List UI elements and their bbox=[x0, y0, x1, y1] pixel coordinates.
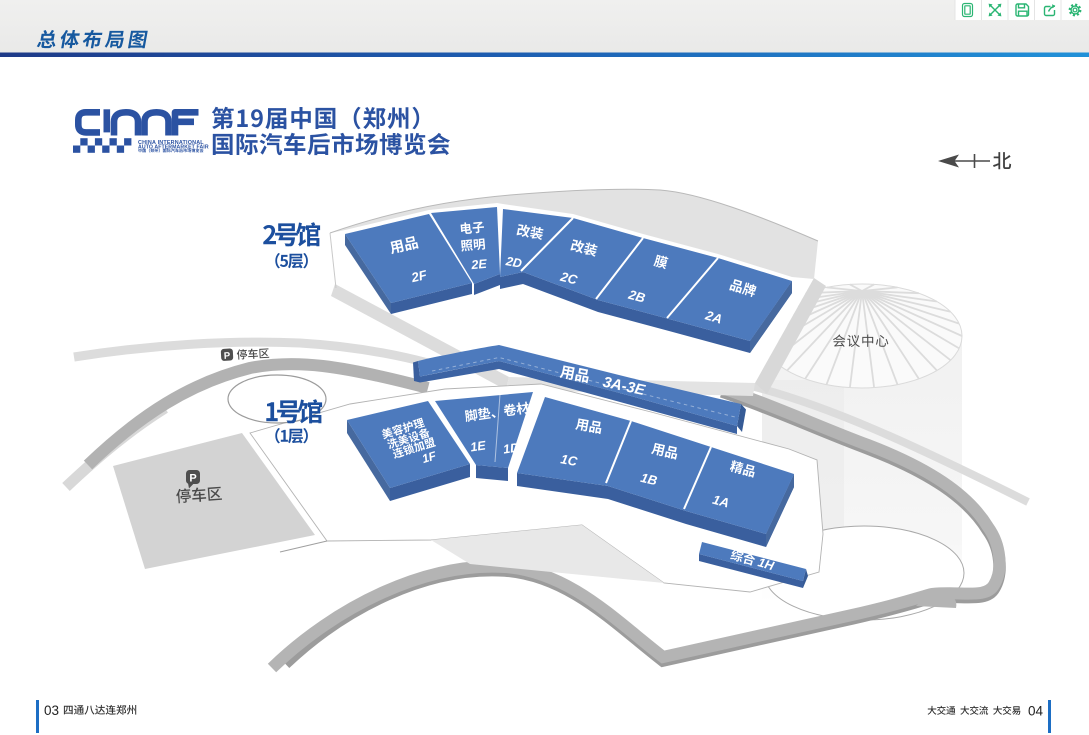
svg-text:2E: 2E bbox=[470, 257, 488, 272]
svg-text:03: 03 bbox=[44, 703, 59, 718]
svg-text:1D: 1D bbox=[502, 440, 520, 456]
svg-text:04: 04 bbox=[1028, 704, 1044, 719]
svg-text:P: P bbox=[189, 473, 196, 485]
svg-text:AUTO AFTERMARKET FAIR: AUTO AFTERMARKET FAIR bbox=[138, 144, 209, 150]
svg-text:1E: 1E bbox=[470, 438, 488, 454]
svg-text:1C: 1C bbox=[559, 451, 579, 469]
svg-text:2D: 2D bbox=[504, 254, 523, 271]
